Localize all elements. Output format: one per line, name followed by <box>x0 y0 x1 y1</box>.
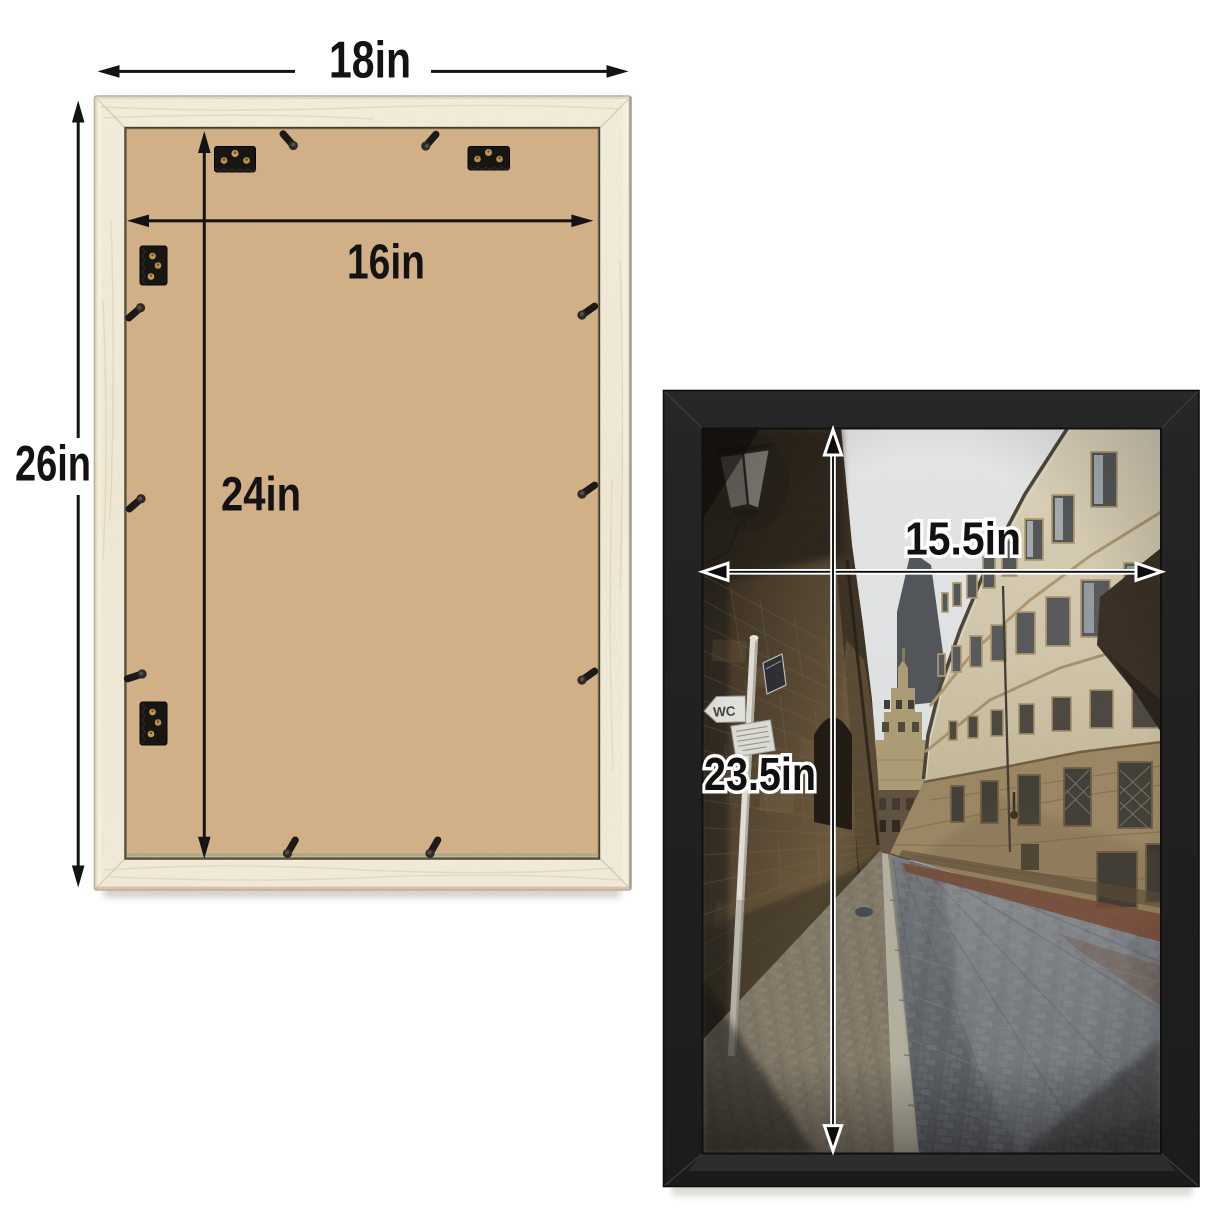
svg-text:26in: 26in <box>15 436 91 492</box>
svg-text:15.5in: 15.5in <box>905 513 1021 565</box>
svg-text:18in: 18in <box>329 32 411 90</box>
svg-text:16in: 16in <box>347 236 425 290</box>
svg-text:23.5in: 23.5in <box>704 748 816 800</box>
svg-text:24in: 24in <box>221 469 301 522</box>
